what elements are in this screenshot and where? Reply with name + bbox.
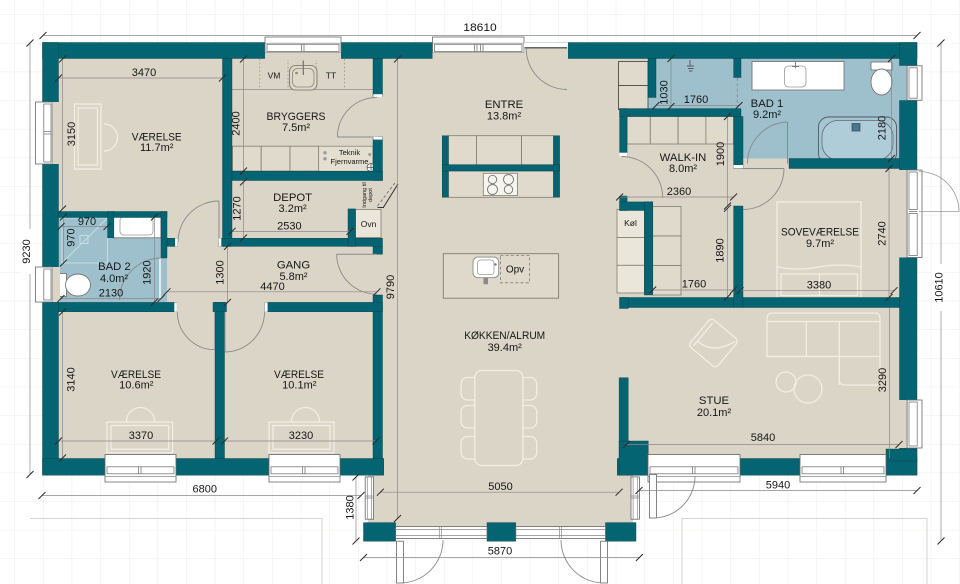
- svg-text:6800: 6800: [193, 484, 217, 496]
- svg-text:10.6m²: 10.6m²: [119, 379, 154, 391]
- svg-text:1030: 1030: [659, 80, 671, 104]
- svg-text:2530: 2530: [277, 221, 301, 233]
- svg-text:3140: 3140: [66, 367, 78, 391]
- svg-text:1900: 1900: [715, 142, 727, 166]
- svg-text:BAD 2: BAD 2: [98, 261, 131, 273]
- svg-text:Teknik: Teknik: [339, 148, 361, 157]
- svg-text:11.7m²: 11.7m²: [140, 142, 174, 154]
- svg-text:3290: 3290: [877, 368, 889, 392]
- svg-text:TT: TT: [326, 71, 336, 81]
- svg-text:2740: 2740: [877, 221, 889, 245]
- svg-text:Ovn: Ovn: [361, 219, 377, 229]
- svg-text:KØKKEN/ALRUM: KØKKEN/ALRUM: [464, 330, 545, 342]
- svg-text:1760: 1760: [684, 94, 708, 106]
- svg-text:3470: 3470: [132, 67, 156, 79]
- svg-text:39.4m²: 39.4m²: [488, 342, 523, 354]
- svg-text:depot: depot: [368, 188, 374, 202]
- svg-text:5870: 5870: [488, 546, 512, 558]
- svg-text:1270: 1270: [232, 196, 244, 220]
- svg-text:5050: 5050: [488, 481, 512, 493]
- svg-text:Opv: Opv: [506, 265, 524, 276]
- svg-text:3150: 3150: [66, 122, 78, 146]
- svg-text:1890: 1890: [715, 238, 727, 262]
- svg-text:10.1m²: 10.1m²: [282, 379, 317, 391]
- svg-text:1920: 1920: [142, 260, 154, 284]
- svg-text:5940: 5940: [766, 480, 790, 492]
- svg-text:1760: 1760: [682, 279, 706, 291]
- svg-text:5.8m²: 5.8m²: [279, 271, 307, 283]
- svg-text:Fjernvarme: Fjernvarme: [331, 157, 369, 166]
- svg-text:9790: 9790: [385, 275, 397, 299]
- svg-text:SOVEVÆRELSE: SOVEVÆRELSE: [781, 227, 859, 239]
- svg-text:970: 970: [66, 228, 78, 246]
- svg-text:ENTRE: ENTRE: [485, 99, 524, 111]
- svg-text:18610: 18610: [463, 22, 497, 34]
- svg-text:9230: 9230: [21, 239, 33, 263]
- svg-text:9.7m²: 9.7m²: [806, 238, 834, 250]
- svg-text:20.1m²: 20.1m²: [697, 407, 732, 419]
- svg-text:7.5m²: 7.5m²: [282, 122, 310, 134]
- svg-text:3380: 3380: [807, 280, 831, 292]
- svg-text:2360: 2360: [667, 186, 691, 198]
- svg-text:2130: 2130: [99, 288, 123, 300]
- svg-text:1380: 1380: [345, 495, 357, 519]
- svg-text:4.0m²: 4.0m²: [100, 273, 128, 285]
- svg-text:2400: 2400: [231, 111, 243, 135]
- svg-text:3370: 3370: [129, 430, 153, 442]
- svg-text:8.0m²: 8.0m²: [669, 163, 697, 175]
- svg-text:STUE: STUE: [699, 395, 730, 407]
- svg-text:VM: VM: [268, 71, 281, 81]
- svg-text:970: 970: [78, 216, 96, 228]
- svg-text:13.8m²: 13.8m²: [487, 110, 522, 122]
- svg-text:5840: 5840: [751, 432, 775, 444]
- svg-text:10610: 10610: [934, 272, 946, 303]
- svg-text:3230: 3230: [289, 430, 313, 442]
- svg-text:9.2m²: 9.2m²: [753, 109, 781, 121]
- svg-text:Køl: Køl: [624, 218, 637, 228]
- svg-text:2180: 2180: [877, 116, 889, 140]
- svg-text:3.2m²: 3.2m²: [279, 203, 307, 215]
- svg-text:1300: 1300: [215, 260, 227, 284]
